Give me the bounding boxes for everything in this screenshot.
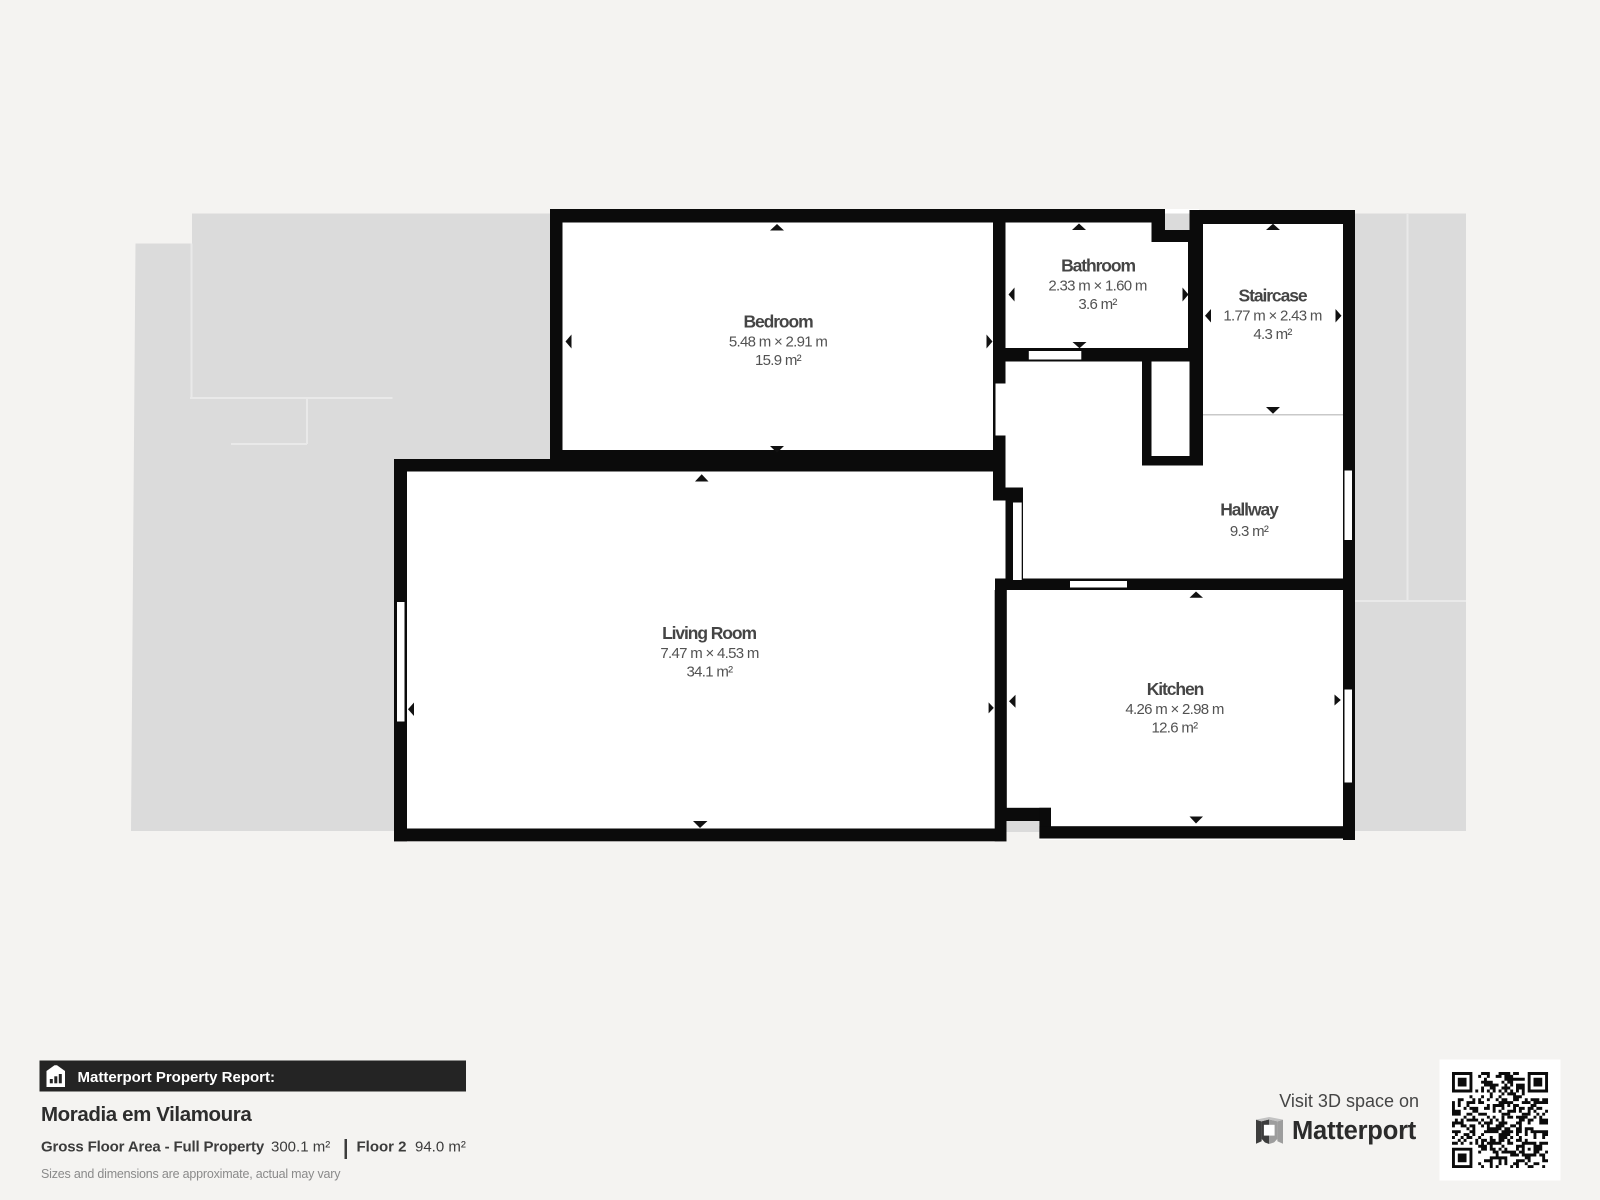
svg-text:15.9 m²: 15.9 m² <box>755 352 802 369</box>
svg-text:5.48 m × 2.91 m: 5.48 m × 2.91 m <box>729 334 828 351</box>
svg-text:7.47 m × 4.53 m: 7.47 m × 4.53 m <box>660 645 759 662</box>
svg-text:Bathroom: Bathroom <box>1061 256 1135 276</box>
svg-text:Sizes and dimensions are appro: Sizes and dimensions are approximate, ac… <box>41 1167 341 1181</box>
svg-text:Floor 2: Floor 2 <box>357 1139 407 1156</box>
svg-text:94.0 m²: 94.0 m² <box>415 1139 466 1156</box>
svg-text:Living Room: Living Room <box>662 623 756 643</box>
svg-text:Moradia em Vilamoura: Moradia em Vilamoura <box>41 1103 252 1126</box>
svg-text:Visit 3D space on: Visit 3D space on <box>1279 1091 1419 1111</box>
svg-text:Bedroom: Bedroom <box>743 312 813 332</box>
svg-text:9.3 m²: 9.3 m² <box>1230 523 1269 540</box>
svg-text:12.6 m²: 12.6 m² <box>1152 720 1199 737</box>
svg-text:1.77 m × 2.43 m: 1.77 m × 2.43 m <box>1223 308 1322 325</box>
svg-text:Matterport Property Report:: Matterport Property Report: <box>78 1069 276 1086</box>
svg-text:Matterport: Matterport <box>1292 1117 1417 1145</box>
svg-text:2.33 m × 1.60 m: 2.33 m × 1.60 m <box>1048 278 1147 295</box>
svg-text:Gross Floor Area - Full Proper: Gross Floor Area - Full Property <box>41 1139 265 1156</box>
svg-text:34.1 m²: 34.1 m² <box>687 664 734 681</box>
svg-text:Staircase: Staircase <box>1239 286 1308 306</box>
svg-text:3.6 m²: 3.6 m² <box>1078 296 1117 313</box>
svg-text:300.1 m²: 300.1 m² <box>271 1139 330 1156</box>
svg-text:4.3 m²: 4.3 m² <box>1253 326 1292 343</box>
svg-text:Kitchen: Kitchen <box>1147 679 1204 699</box>
svg-text:Hallway: Hallway <box>1220 500 1279 520</box>
svg-text:4.26 m × 2.98 m: 4.26 m × 2.98 m <box>1125 701 1224 718</box>
